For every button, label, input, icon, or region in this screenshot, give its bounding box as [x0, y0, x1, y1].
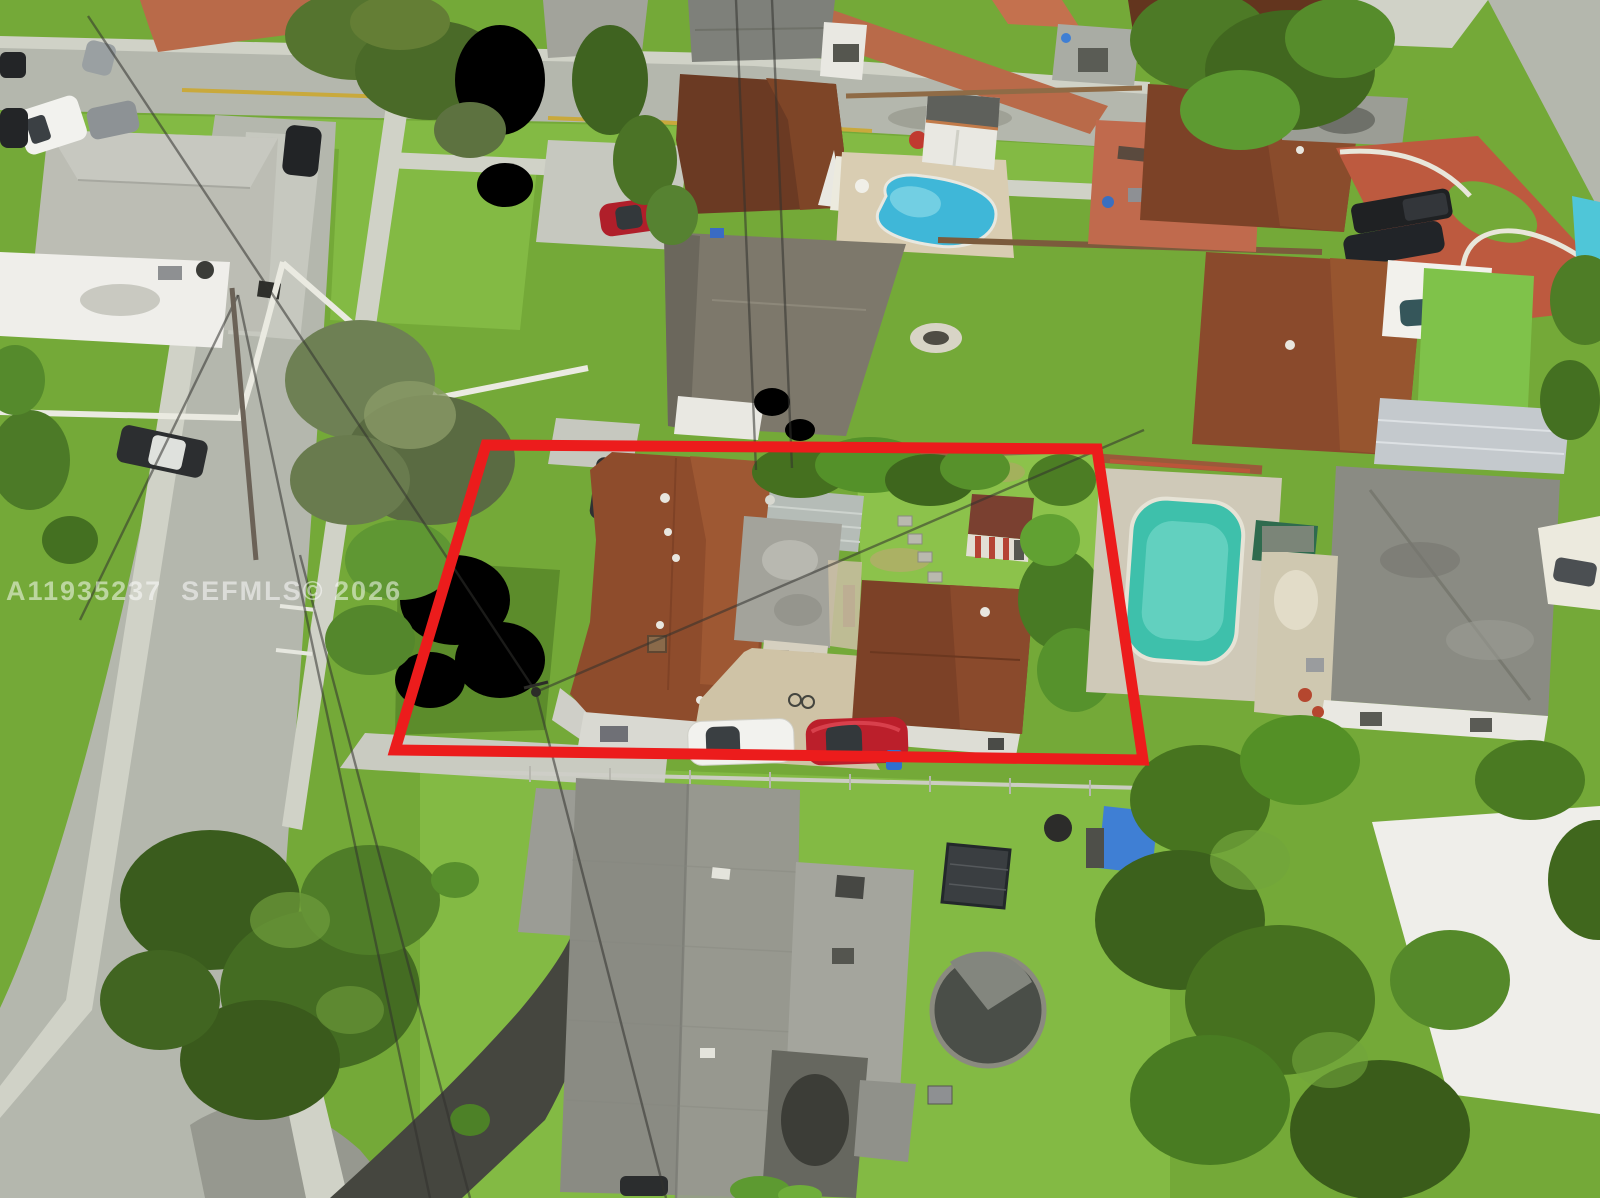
utility-pole-top	[531, 687, 541, 697]
rooftop-unit	[158, 266, 182, 280]
flat-roof-unit	[734, 516, 842, 648]
window	[833, 44, 859, 62]
aerial-photo: A11935237 SEFMLS© 2026	[0, 0, 1600, 1198]
vent	[1296, 146, 1304, 154]
roof-weathering	[1446, 620, 1534, 660]
roof-weathering	[1380, 542, 1460, 578]
blue-sign	[710, 228, 724, 238]
palm	[754, 388, 790, 416]
paver-driveway	[1374, 398, 1570, 474]
solar-panel	[942, 844, 1010, 908]
gray-roof-b	[688, 0, 835, 62]
dark-object	[1086, 828, 1104, 868]
vent	[980, 607, 990, 617]
roof-stain-dark	[781, 1074, 849, 1166]
vent	[672, 554, 680, 562]
shed-opening	[1078, 48, 1108, 72]
vent	[656, 621, 664, 629]
satellite-dish	[765, 495, 775, 505]
vent	[711, 867, 730, 880]
pool-sliver	[1572, 196, 1600, 262]
black-suv	[281, 124, 322, 177]
attic-vent	[600, 726, 628, 742]
garage-vent	[988, 738, 1004, 750]
vent	[1285, 340, 1295, 350]
ac-unit	[196, 261, 214, 279]
window	[1360, 712, 1382, 726]
grill	[1044, 814, 1072, 842]
fire-pit-center	[923, 331, 949, 345]
skylight	[835, 875, 865, 899]
blue-item	[1061, 33, 1071, 43]
vent	[700, 1048, 715, 1058]
mls-watermark: A11935237 SEFMLS© 2026	[6, 576, 402, 606]
vent	[664, 528, 672, 536]
roof-stain	[1274, 570, 1318, 630]
pool-center	[1140, 519, 1230, 642]
window	[1470, 718, 1492, 732]
black-car	[0, 52, 26, 78]
skylight	[832, 948, 854, 964]
sand-strip	[828, 560, 862, 650]
stripe	[989, 537, 995, 559]
east-roof	[1324, 466, 1560, 716]
ac-unit	[928, 1086, 952, 1104]
roof-stain	[80, 284, 160, 316]
small-roof	[854, 1080, 916, 1162]
trampoline-pool	[932, 952, 1044, 1066]
stripe	[1003, 538, 1009, 560]
roof-stain	[774, 594, 822, 626]
blue-barrel	[1102, 196, 1114, 208]
small-structure	[1262, 526, 1314, 552]
vent	[660, 493, 670, 503]
screenshot-root: A11935237 SEFMLS© 2026	[0, 0, 1600, 1198]
ac-unit	[1306, 658, 1324, 672]
stripe	[975, 536, 981, 558]
black-car	[0, 108, 28, 148]
patio-table	[855, 179, 869, 193]
